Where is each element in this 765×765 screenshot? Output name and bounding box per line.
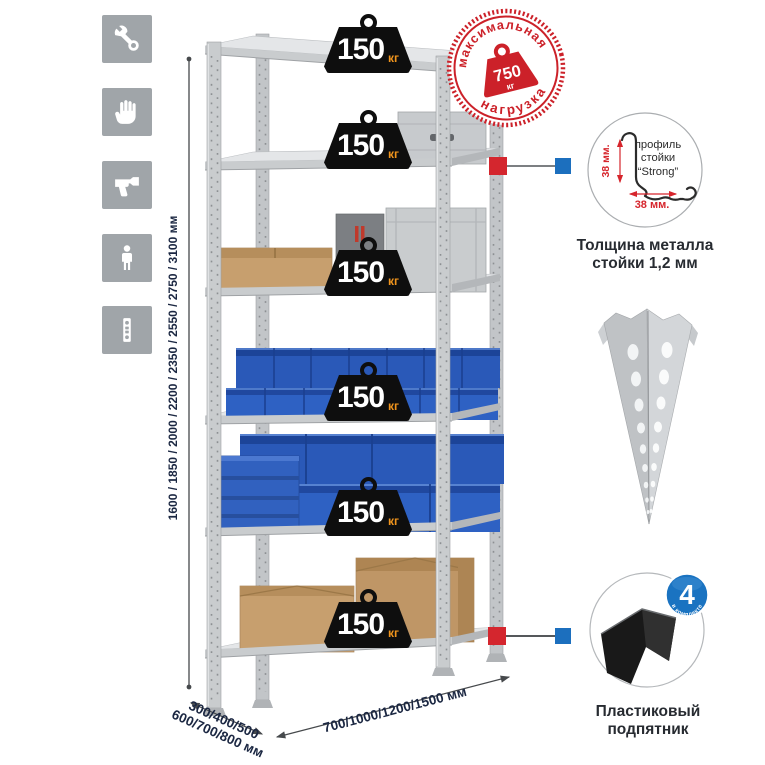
wrench-icon xyxy=(102,15,152,63)
shelf-weight-badge: 150кг xyxy=(324,477,412,536)
person-icon xyxy=(102,234,152,282)
foot-caption-1: Пластиковый xyxy=(596,703,701,720)
profile-caption-2: стойки 1,2 мм xyxy=(592,255,697,272)
weight-value: 150 xyxy=(337,498,384,528)
blue-marker-square xyxy=(555,158,571,174)
callout-bottom xyxy=(488,627,571,645)
foot-detail: 4 в комплекте Пластиковый подпятник xyxy=(590,573,709,738)
weight-value: 150 xyxy=(337,383,384,413)
profile-label-1: профиль xyxy=(635,139,681,151)
rack-post-icon xyxy=(102,306,152,354)
width-dimension: 700/1000/1200/1500 мм xyxy=(277,677,509,737)
gloves-icon xyxy=(102,88,152,136)
weight-unit: кг xyxy=(388,399,399,413)
weight-unit: кг xyxy=(388,626,399,640)
blue-marker-square xyxy=(555,628,571,644)
red-marker-square xyxy=(488,627,506,645)
foot-caption-2: подпятник xyxy=(607,721,688,738)
badge-value: 4 xyxy=(679,579,695,610)
shelf-weight-badge: 150кг xyxy=(324,14,412,73)
drill-icon xyxy=(102,161,152,209)
blue-crate xyxy=(221,456,299,532)
weight-unit: кг xyxy=(388,51,399,65)
profile-detail: 38 мм. 38 мм. профиль стойки “Strong” То… xyxy=(577,113,714,272)
profile-dim-vertical: 38 мм. xyxy=(600,144,612,177)
red-marker-square xyxy=(489,157,507,175)
height-dimension: 1600 / 1850 / 2000 / 2200 / 2350 / 2550 … xyxy=(166,57,191,690)
weight-value: 150 xyxy=(337,131,384,161)
width-label: 700/1000/1200/1500 мм xyxy=(322,684,469,735)
height-label: 1600 / 1850 / 2000 / 2200 / 2350 / 2550 … xyxy=(166,216,180,521)
weight-value: 150 xyxy=(337,35,384,65)
shelf-weight-badge: 150кг xyxy=(324,362,412,421)
weight-value: 150 xyxy=(337,610,384,640)
profile-label-2: стойки xyxy=(641,152,675,164)
count-badge: 4 в комплекте xyxy=(666,574,709,618)
shelf-weight-badge: 150кг xyxy=(324,237,412,296)
weight-unit: кг xyxy=(388,147,399,161)
profile-label-3: “Strong” xyxy=(638,166,679,178)
angle-post-photo xyxy=(598,309,698,524)
post-front-left xyxy=(203,42,226,716)
weight-value: 150 xyxy=(337,258,384,288)
callout-top xyxy=(489,157,571,175)
profile-dim-horizontal: 38 мм. xyxy=(635,199,670,211)
shelf-weight-badge: 150кг xyxy=(324,589,412,648)
shelving-infographic: 1600 / 1850 / 2000 / 2200 / 2350 / 2550 … xyxy=(0,0,765,765)
weight-unit: кг xyxy=(388,514,399,528)
shelf-weight-badge: 150кг xyxy=(324,110,412,169)
profile-caption-1: Толщина металла xyxy=(577,237,714,254)
weight-unit: кг xyxy=(388,274,399,288)
